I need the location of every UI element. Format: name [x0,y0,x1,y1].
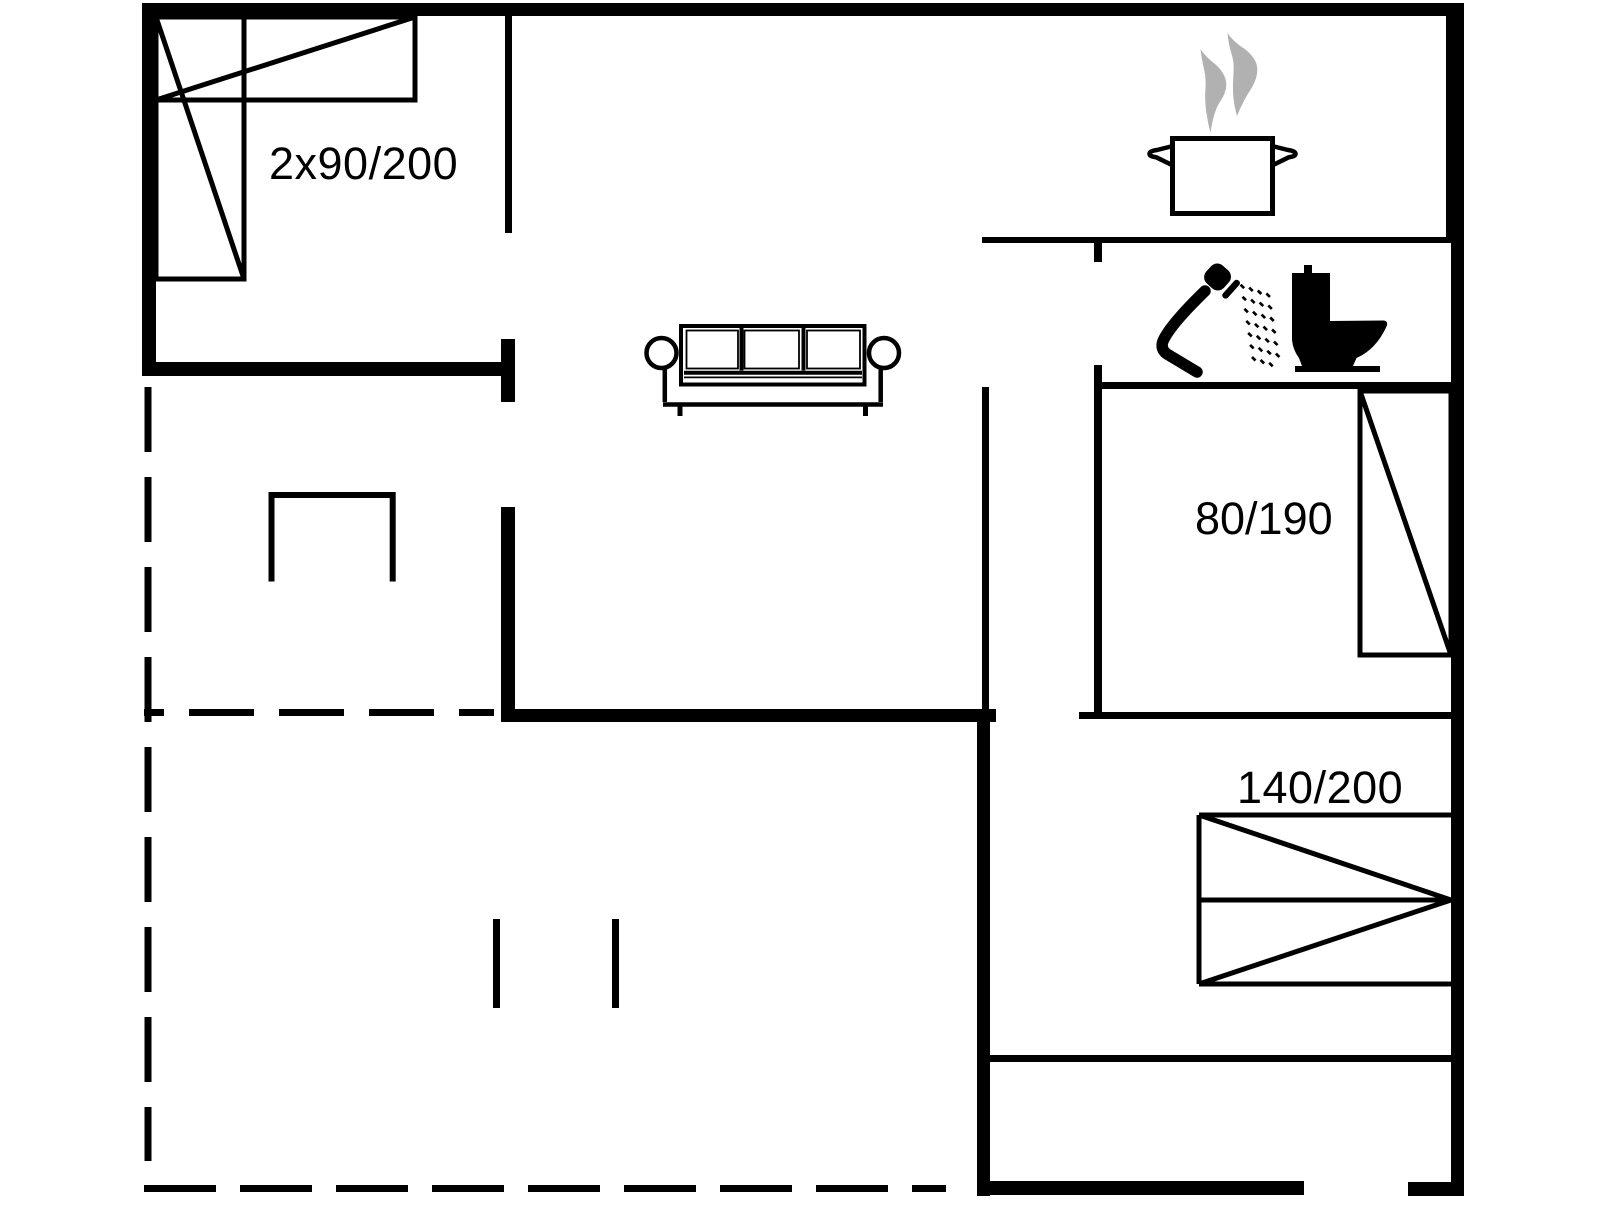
svg-text:80/190: 80/190 [1195,493,1333,544]
svg-text:140/200: 140/200 [1237,762,1403,813]
svg-text:2x90/200: 2x90/200 [269,138,458,189]
